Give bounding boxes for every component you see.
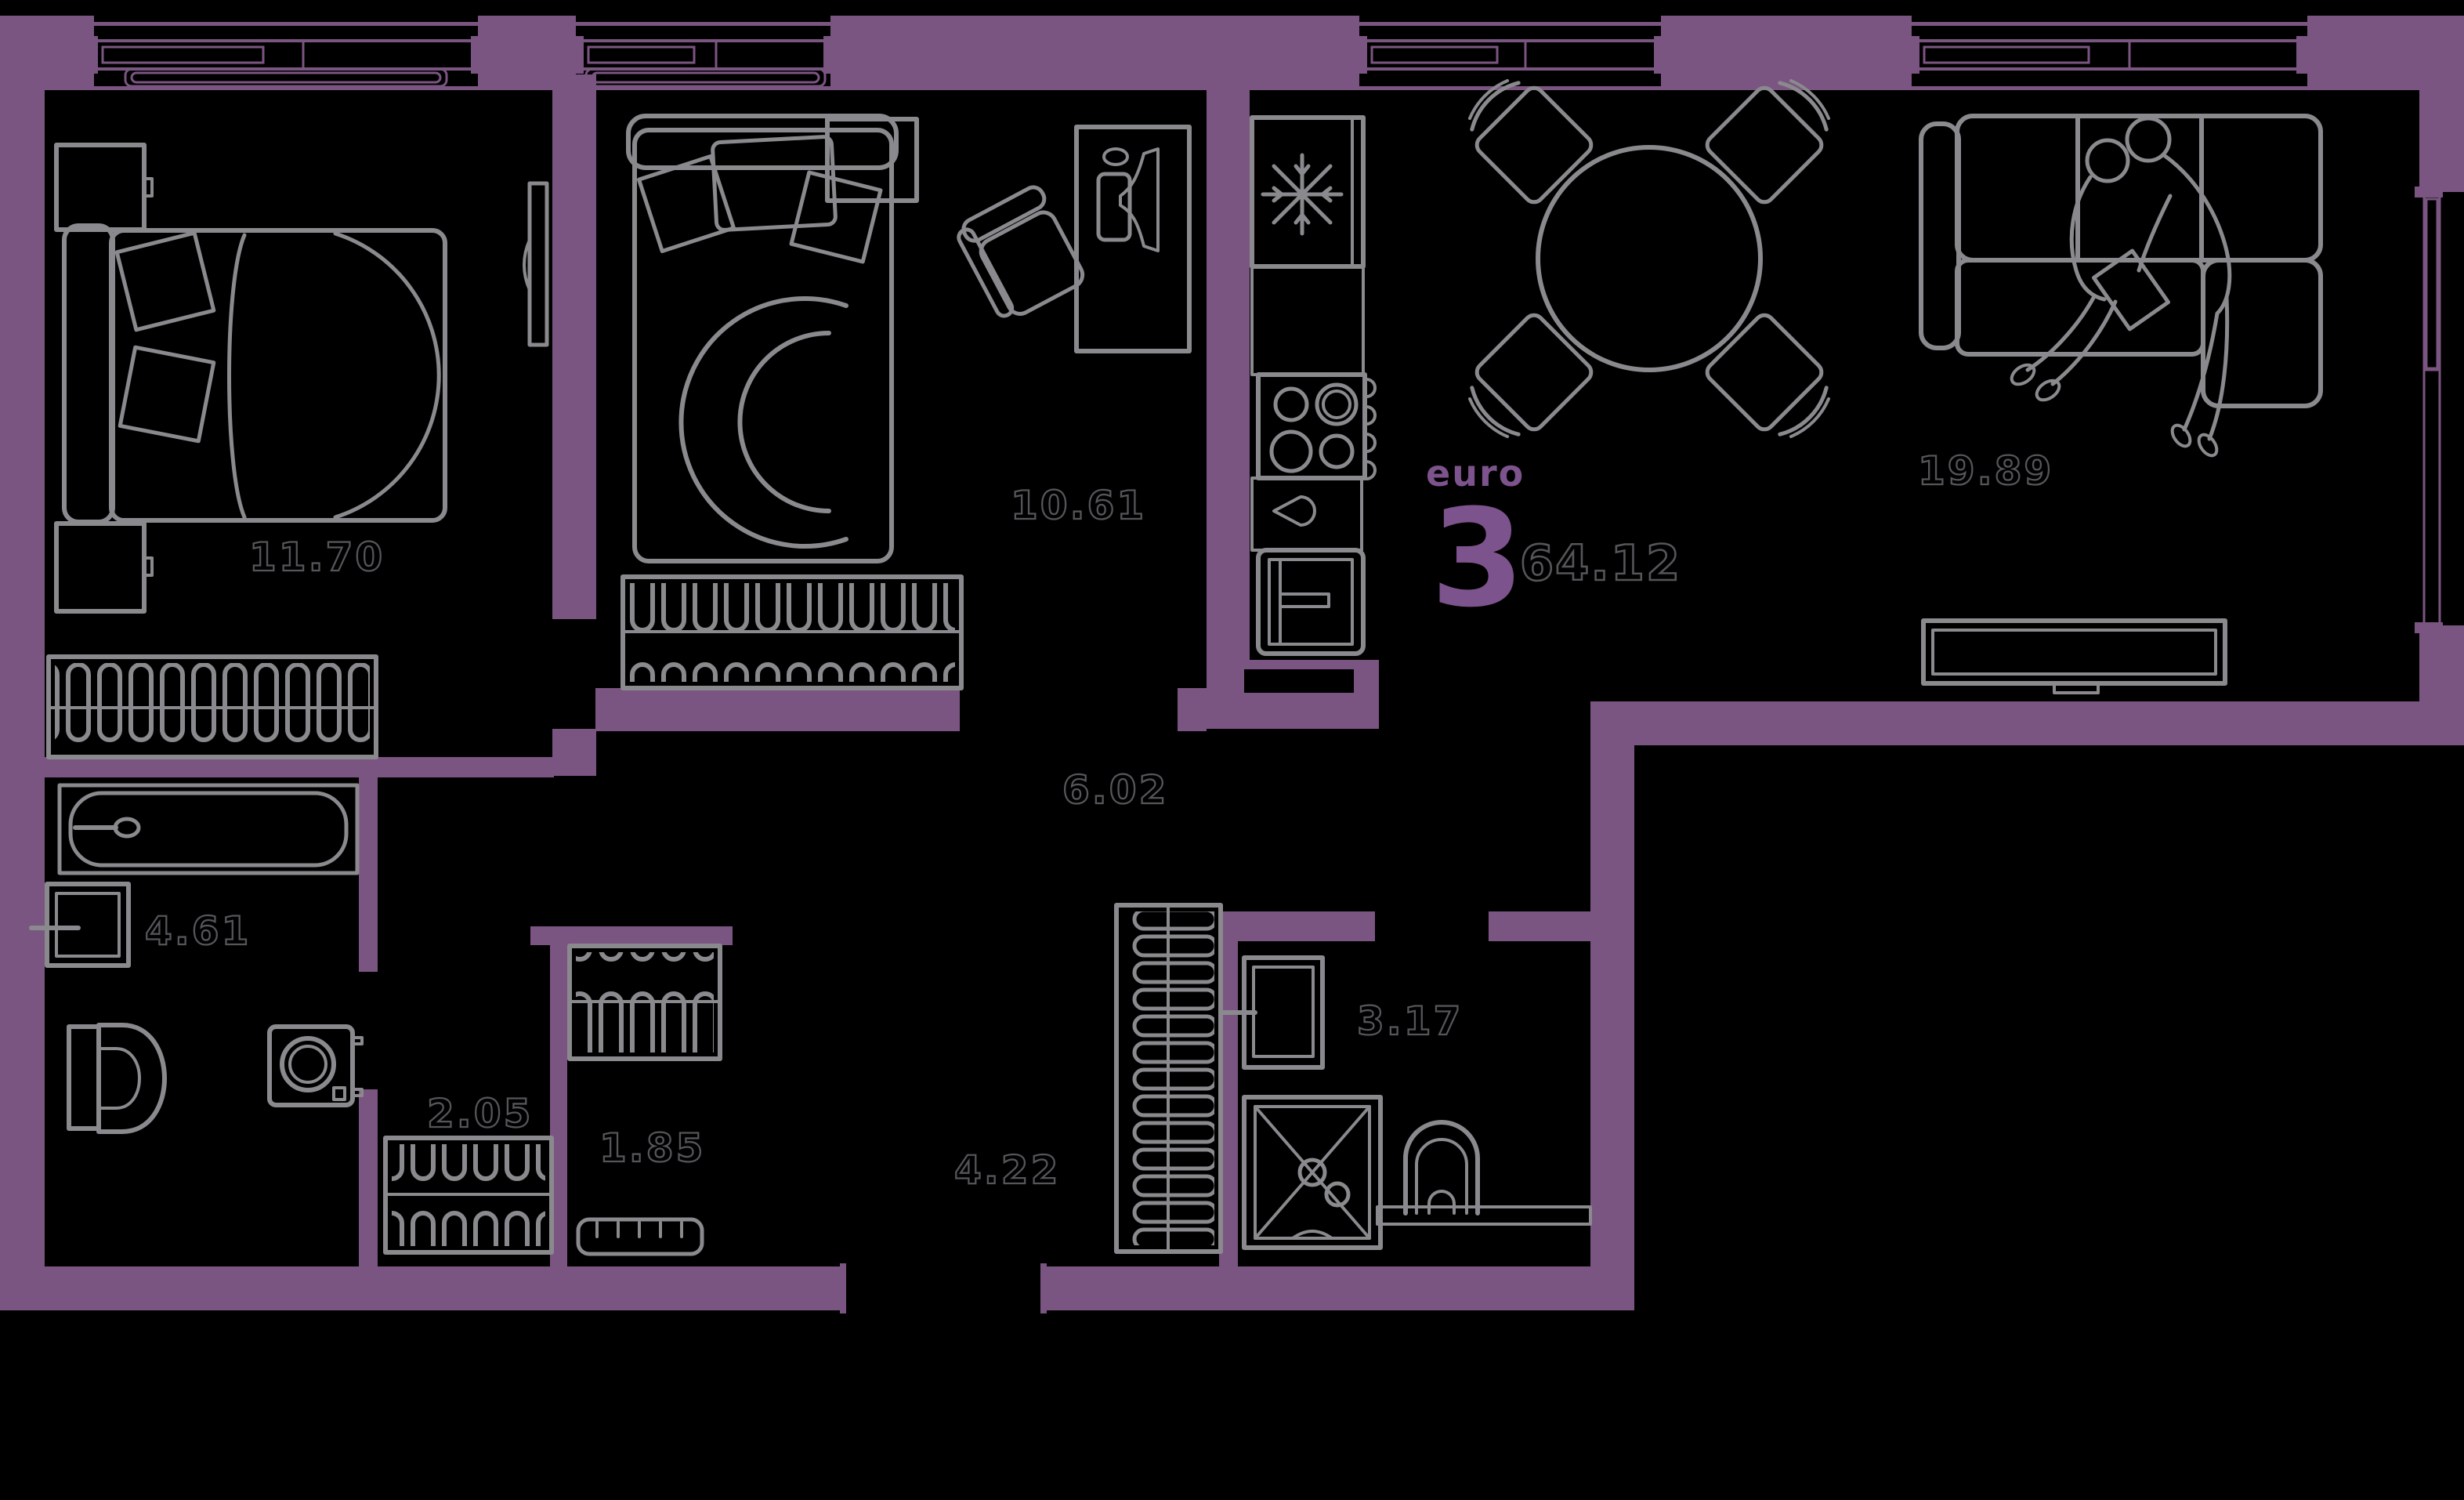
nightstand-icon [56, 145, 152, 230]
kitchen-sink-counter [1252, 478, 1362, 550]
area-label-shower: 3.17 [1357, 998, 1463, 1044]
wardrobe-hangers-icon [570, 946, 720, 1059]
floor-plan-page: 11.70 10.6 [0, 0, 2464, 1500]
wardrobe-hangers-icon [49, 657, 376, 757]
radiator-bedroom2 [586, 69, 825, 86]
room-bedroom2: 10.61 [623, 116, 1189, 688]
tv-console-icon [1923, 621, 2225, 693]
radiator-bedroom1 [125, 69, 447, 86]
window-dining [1356, 22, 1665, 90]
area-label-living: 19.89 [1918, 448, 2053, 494]
desk-chair-icon [953, 183, 1088, 324]
stove-icon [1258, 375, 1375, 479]
room-bathroom: 4.61 [31, 785, 362, 1132]
kitchen-cabinet-icon [1258, 550, 1363, 654]
area-label-hallway: 4.22 [954, 1147, 1060, 1193]
washing-machine-icon [270, 1027, 362, 1105]
area-label-bathroom: 4.61 [145, 908, 251, 954]
plan-total-area: 64.12 [1520, 534, 1681, 592]
room-hallway: 4.22 [954, 905, 1221, 1252]
fridge-icon [1252, 118, 1363, 266]
shoe-bench-icon [578, 1219, 702, 1254]
room-bedroom1: 11.70 [49, 145, 547, 757]
wall-tv-icon [524, 183, 547, 345]
window-bedroom2 [573, 22, 834, 90]
people-reading-icon [2008, 118, 2230, 458]
wardrobe-hangers-icon [623, 577, 961, 688]
bathtub-icon [60, 785, 357, 873]
kitchen-counter [1252, 266, 1363, 375]
plan-rooms-count: 3 [1431, 480, 1525, 637]
area-label-bedroom1: 11.70 [249, 534, 385, 580]
kitchen-units [1252, 118, 1375, 654]
nightstand-icon [56, 524, 152, 611]
plan-summary: euro 3 64.12 [1426, 452, 1681, 637]
area-label-bedroom2: 10.61 [1011, 483, 1146, 528]
area-label-wardrobe: 1.85 [599, 1125, 705, 1171]
shower-cabin-icon [1244, 1097, 1380, 1248]
bathroom-sink-icon [31, 884, 128, 966]
room-wardrobe: 1.85 [570, 946, 720, 1254]
room-living: 19.89 [1918, 116, 2321, 693]
window-bedroom1 [87, 22, 482, 90]
shower-toilet-icon [1377, 1122, 1590, 1224]
dining-table-icon [1538, 147, 1760, 370]
wardrobe-hangers-icon [385, 1138, 552, 1252]
area-label-closet: 2.05 [427, 1091, 533, 1136]
room-shower: 3.17 [1222, 958, 1590, 1248]
dining-set [1454, 65, 1843, 451]
tall-wardrobe-hangers-icon [1116, 905, 1221, 1252]
floor-plan-canvas: 11.70 10.6 [0, 0, 2464, 1500]
area-label-corridor: 6.02 [1062, 767, 1168, 813]
window-balcony [2415, 187, 2443, 633]
toilet-icon [69, 1025, 165, 1132]
window-living [1909, 22, 2307, 90]
counter-shelf [1377, 1207, 1590, 1224]
entrance-door-opening [840, 1263, 846, 1313]
room-closet: 2.05 [385, 1091, 552, 1252]
dining-chair-icon [1454, 311, 1594, 451]
single-bed-icon [628, 116, 896, 561]
double-bed-icon [64, 226, 445, 522]
desk-icon [1076, 127, 1189, 351]
dining-chair-icon [1703, 311, 1843, 451]
